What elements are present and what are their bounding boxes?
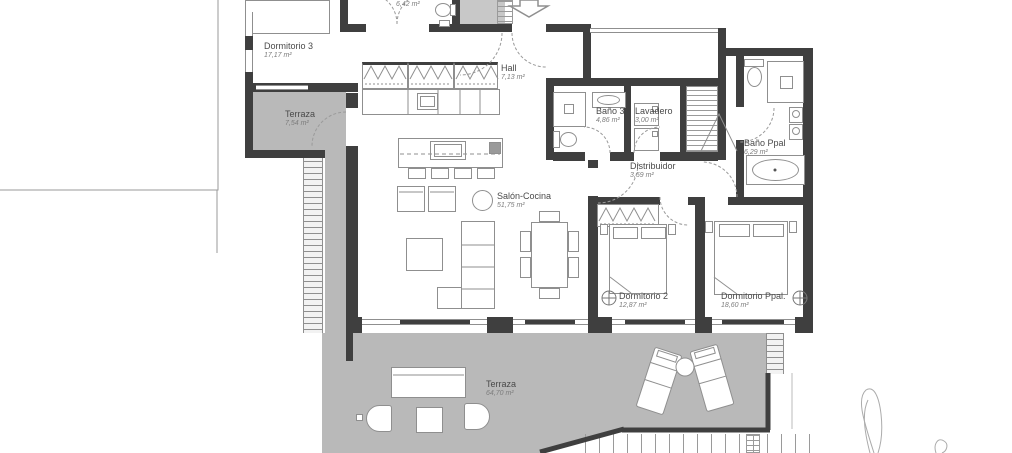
window-panel	[722, 320, 784, 324]
closet	[686, 86, 718, 152]
wall	[546, 24, 586, 32]
room-label-dormitorio-3: Dormitorio 3 17,17 m²	[264, 41, 313, 60]
dining-chair	[568, 231, 579, 252]
bar-stool	[454, 168, 472, 179]
dining-chair	[539, 211, 560, 222]
pillow	[753, 224, 784, 237]
room-area: 12,87 m²	[619, 301, 668, 310]
wall	[695, 197, 705, 333]
louver-screen-west	[303, 155, 323, 333]
facade-pillar	[346, 317, 362, 333]
wardrobe	[454, 62, 498, 89]
nightstand	[600, 224, 608, 235]
wall	[736, 56, 744, 107]
toilet-cistern	[450, 4, 456, 16]
wall	[550, 78, 722, 86]
bar-stool	[477, 168, 495, 179]
room-label-distribuidor: Distribuidor 3,59 m²	[630, 161, 676, 180]
dining-chair	[539, 288, 560, 299]
shower-drain	[564, 104, 574, 114]
room-name: Baño Ppal	[744, 138, 786, 148]
toilet	[435, 3, 451, 17]
planter	[356, 414, 363, 421]
toilet-cistern	[744, 59, 764, 67]
dining-chair	[520, 257, 531, 278]
room-area: 17,17 m²	[264, 51, 313, 60]
window	[245, 50, 253, 72]
wall	[245, 90, 253, 152]
room-label-banyo-3: Baño 3 4,86 m²	[596, 106, 625, 125]
facade-pillar	[795, 317, 813, 333]
room-label-terraza-norte: Terraza 7,54 m²	[285, 109, 315, 128]
sofa	[461, 221, 495, 309]
washbasin	[597, 95, 620, 105]
wall	[736, 140, 744, 198]
room-label-hall: Hall 7,13 m²	[501, 63, 525, 82]
room-area: 7,54 m²	[285, 119, 315, 128]
wall	[340, 24, 366, 32]
wardrobe	[408, 62, 454, 89]
window	[245, 12, 253, 36]
room-name: Dormitorio 3	[264, 41, 313, 51]
window	[590, 28, 718, 33]
wall	[725, 48, 813, 56]
room-area: 64,70 m²	[486, 389, 516, 398]
room-area: 6,42 m²	[396, 0, 420, 9]
room-area: 51,75 m²	[497, 201, 551, 210]
washbasin	[792, 127, 800, 135]
nightstand	[705, 221, 713, 233]
room-name: Salón-Cocina	[497, 191, 551, 201]
shower-drain	[780, 76, 793, 89]
pool-ladder	[746, 434, 760, 453]
room-name: Hall	[501, 63, 525, 73]
coffee-table	[406, 238, 443, 271]
cooktop	[420, 96, 435, 107]
room-area: 18,60 m²	[721, 301, 786, 310]
bed-dormitorio-3	[245, 0, 330, 34]
room-label-salon-cocina: Salón-Cocina 51,75 m²	[497, 191, 551, 210]
window-panel	[625, 320, 685, 324]
sofa-chaise	[437, 287, 462, 309]
wall	[803, 48, 813, 333]
pillow	[613, 227, 638, 239]
louver-screen-east	[766, 333, 784, 374]
room-area: 4,86 m²	[596, 116, 625, 125]
wall	[660, 152, 718, 161]
room-label-dormitorio-ppal: Dormitorio Ppal. 18,60 m²	[721, 291, 786, 310]
room-area: 3,00 m²	[635, 116, 673, 125]
neighbour-unit-outline	[0, 0, 218, 190]
pillow	[719, 224, 750, 237]
room-name: Dormitorio 2	[619, 291, 668, 301]
room-area: 7,13 m²	[501, 73, 525, 82]
wall	[346, 331, 353, 361]
garden-stairs	[585, 434, 815, 453]
dryer-knob	[652, 131, 658, 137]
kitchen-sink	[434, 144, 462, 157]
floor-plan: Dormitorio 3 17,17 m² Terraza 7,54 m² 6,…	[0, 0, 1012, 453]
room-label-banyo-ppal: Baño Ppal 6,29 m²	[744, 138, 786, 157]
garden-plant-outline	[935, 440, 947, 453]
armchair	[397, 186, 425, 212]
terrace-side-strip	[325, 150, 346, 333]
room-area: 6,29 m²	[744, 148, 786, 157]
outdoor-sofa	[391, 367, 466, 398]
nightstand	[668, 224, 676, 235]
washbasin	[439, 20, 450, 27]
dining-table	[531, 222, 568, 288]
room-name: Terraza	[285, 109, 315, 119]
wall	[553, 152, 585, 161]
room-label-lavadero: Lavadero 3,00 m²	[635, 106, 673, 125]
nightstand	[789, 221, 797, 233]
armchair	[428, 186, 456, 212]
bathtub	[752, 159, 799, 181]
toilet	[747, 67, 762, 87]
outdoor-chair	[464, 403, 490, 430]
pillow	[641, 227, 666, 239]
facade-pillar	[588, 317, 612, 333]
side-table-round	[472, 190, 493, 211]
wall	[245, 150, 325, 158]
facade-pillar	[695, 317, 712, 333]
room-name: Terraza	[486, 379, 516, 389]
outdoor-chair	[366, 405, 392, 432]
room-name: Distribuidor	[630, 161, 676, 171]
bar-stool	[408, 168, 426, 179]
toilet	[560, 132, 577, 147]
room-name: Dormitorio Ppal.	[721, 291, 786, 301]
window	[256, 85, 308, 90]
facade-pillar	[487, 317, 513, 333]
wall	[588, 160, 598, 168]
room-name: Lavadero	[635, 106, 673, 116]
hob	[489, 142, 501, 154]
window-panel	[400, 320, 470, 324]
outdoor-table	[416, 407, 443, 433]
wardrobe	[362, 62, 408, 89]
dining-chair	[568, 257, 579, 278]
room-label-terraza-sur: Terraza 64,70 m²	[486, 379, 516, 398]
window-panel	[525, 320, 575, 324]
room-label-banyo-2: 6,42 m²	[396, 0, 420, 9]
room-name: Baño 3	[596, 106, 625, 116]
garden-plant-outline	[864, 400, 870, 453]
room-label-dormitorio-2: Dormitorio 2 12,87 m²	[619, 291, 668, 310]
dining-chair	[520, 231, 531, 252]
stair-shaft	[497, 0, 513, 24]
toilet-cistern	[553, 131, 560, 148]
wall	[346, 93, 358, 108]
room-area: 3,59 m²	[630, 171, 676, 180]
washbasin	[792, 110, 800, 118]
bar-stool	[431, 168, 449, 179]
wall	[346, 146, 358, 333]
wall	[610, 152, 634, 161]
wall	[728, 197, 813, 205]
